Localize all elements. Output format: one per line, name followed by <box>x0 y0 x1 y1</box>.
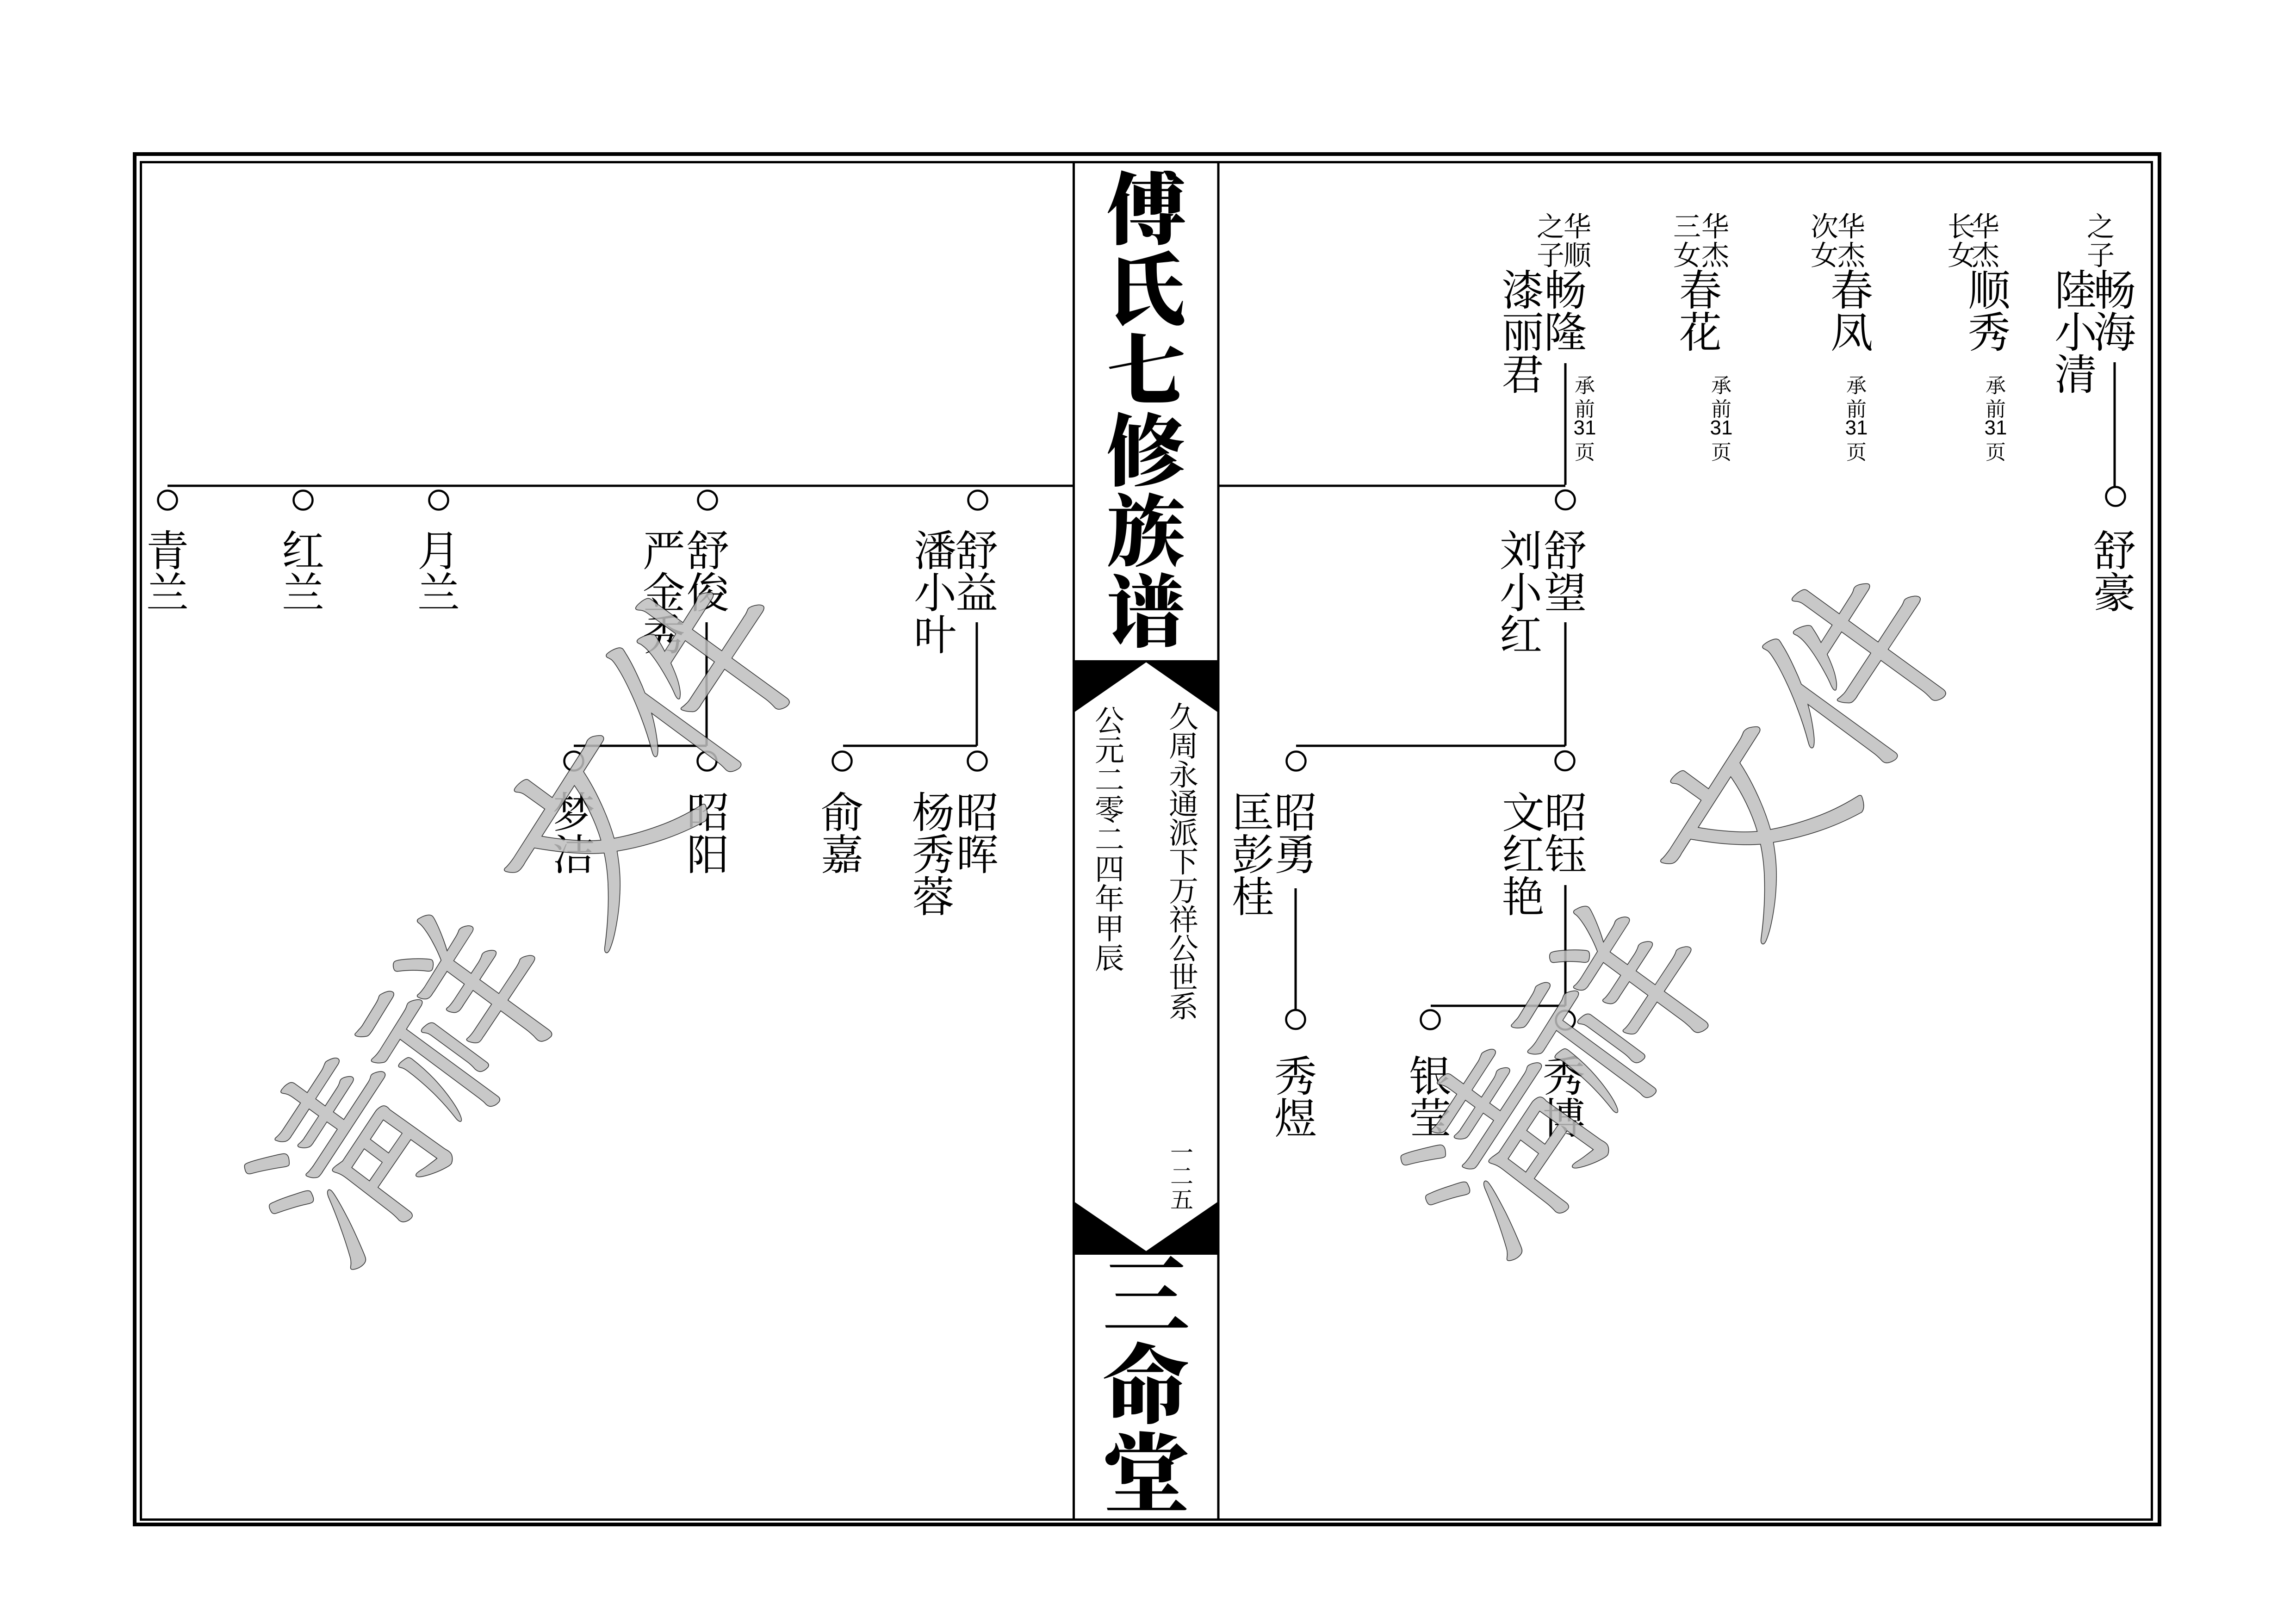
svg-text:31: 31 <box>1710 416 1733 439</box>
svg-text:31: 31 <box>1845 416 1868 439</box>
svg-text:31: 31 <box>1574 416 1596 439</box>
svg-text:31: 31 <box>1985 416 2007 439</box>
